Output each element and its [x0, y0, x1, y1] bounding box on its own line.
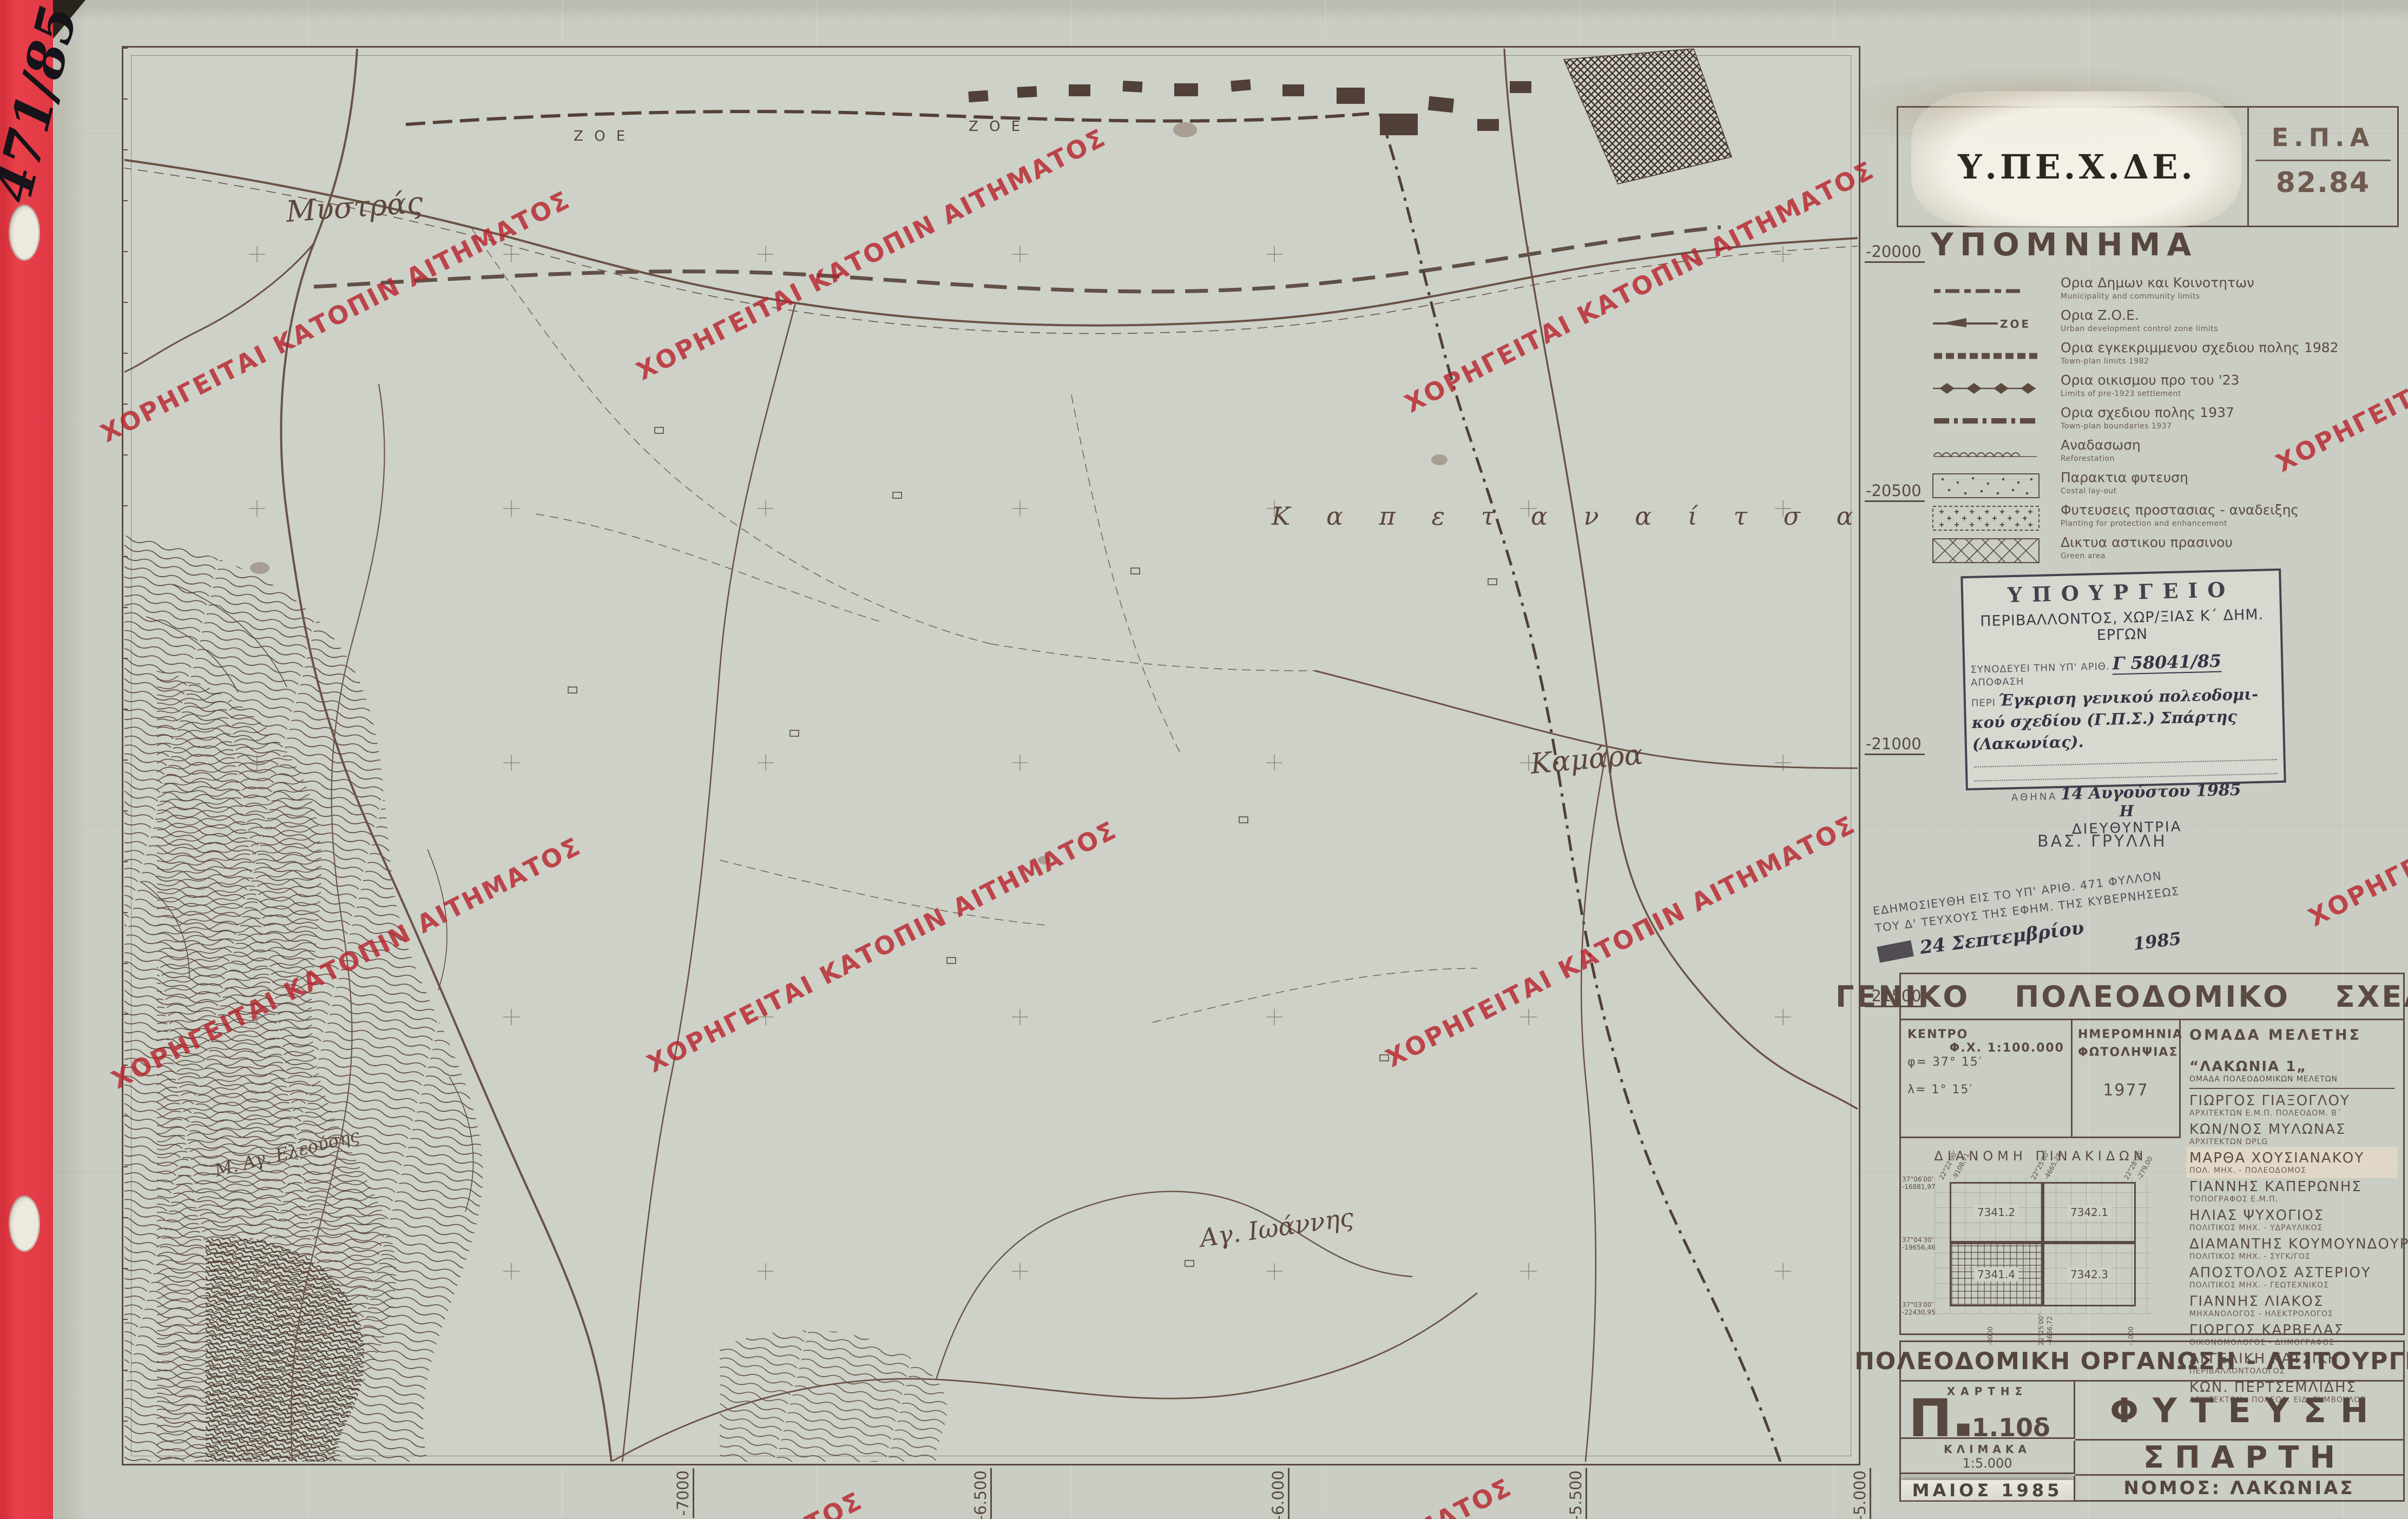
legend-greek: Ορια εγκεκριμμενου σχεδιου πολης 1982	[2061, 340, 2339, 355]
member-role: ΑΡΧΙΤΕΚΤΩΝ Ε.Μ.Π. ΠΟΛΕΟΔΟΜ. Β΄	[2189, 1109, 2394, 1118]
dashdot-line-symbol	[1931, 277, 2042, 305]
member-name: ΓΙΩΡΓΟΣ ΓΙΑΞΟΓΛΟΥ	[2189, 1093, 2394, 1109]
member-role: ΤΟΠΟΓΡΑΦΟΣ Ε.Μ.Π.	[2189, 1195, 2394, 1204]
subject-hand-1: Έγκριση γενικού πολεοδομι-	[1998, 685, 2259, 710]
legend-english: Costal lay-out	[2061, 487, 2117, 496]
index-coord: 37°03′00″	[1902, 1301, 1934, 1309]
member-name: ΓΙΑΝΝΗΣ ΛΙΑΚΟΣ	[2189, 1293, 2394, 1310]
legend-title: ΥΠΟΜΝΗΜΑ	[1931, 226, 2198, 263]
legend-item: ΖΟΕ Ορια Ζ.Ο.Ε.Urban development control…	[1931, 307, 2402, 340]
legend-english: Planting for protection and enhancement	[2061, 519, 2227, 528]
legend-item: Ορια εγκεκριμμενου σχεδιου πολης 1982Tow…	[1931, 340, 2402, 372]
subject-hand-2: κού σχεδίου (Γ.Π.Σ.) Σπάρτης	[1971, 706, 2277, 732]
plus-box-symbol	[1931, 504, 2042, 532]
sheet-index-cell: ΔΙΑΝΟΜΗ ΠΙΝΑΚΙΔΩΝ 7341.2 7342.1 7341.4 7…	[1901, 1140, 2181, 1333]
map-number: ▪1.10δ	[1955, 1413, 2050, 1442]
member-name: ΜΑΡΘΑ ΧΟΥΣΙΑΝΑΚΟΥ	[2189, 1150, 2394, 1166]
ministry-stamp: ΥΠΟΥΡΓΕΙΟ ΠΕΡΙΒΑΛΛΟΝΤΟΣ, ΧΩΡ/ΞΙΑΣ Κ΄ ΔΗΜ…	[1960, 569, 2286, 790]
photo-year: 1977	[2078, 1081, 2174, 1100]
photo-date-cell: ΗΜΕΡΟΜΗΝΙΑ ΦΩΤΟΛΗΨΙΑΣ 1977	[2073, 1020, 2181, 1138]
program-years: 82.84	[2249, 167, 2397, 199]
legend-item: Φυτευσεις προστασιας - αναδειξηςPlanting…	[1931, 502, 2402, 534]
decision-number: Γ 58041/85	[2112, 651, 2221, 675]
decision-suffix: ΑΠΟΦΑΣΗ	[1971, 676, 2024, 688]
legend-english: Town-plan boundaries 1937	[2061, 422, 2172, 431]
grid-coordinate: -20500	[1865, 481, 1925, 502]
gps-title: ΓΕΝΙΚΟ ΠΟΛΕΟΔΟΜΙΚΟ ΣΧΕΔΙΟ	[1901, 974, 2403, 1020]
title-block: ΠΟΛΕΟΔΟΜΙΚΗ ΟΡΓΑΝΩΣΗ - ΛΕΙΤΟΥΡΓΙΕΣ ΧΑΡΤΗ…	[1899, 1340, 2405, 1502]
photo-label-1: ΗΜΕΡΟΜΗΝΙΑ	[2078, 1028, 2174, 1041]
grid-coordinate: -21000	[1865, 735, 1925, 755]
signer-name: ΒΑΣ. ΓΡΥΛΛΗ	[2037, 832, 2167, 851]
grid-coordinate: -6.500	[971, 1468, 992, 1519]
member-name: ΓΙΩΡΓΟΣ ΚΑΡΒΕΛΑΣ	[2189, 1322, 2394, 1338]
map-number-cell: ΧΑΡΤΗΣ Π ▪1.10δ	[1901, 1382, 2075, 1439]
subject-label: ΠΕΡΙ	[1971, 697, 1996, 709]
program-label: Ε.Π.Α	[2249, 123, 2397, 152]
grid-coordinate: -7000	[674, 1468, 694, 1518]
member-name: ΓΙΑΝΝΗΣ ΚΑΠΕΡΩΝΗΣ	[2189, 1179, 2394, 1195]
header-box: Υ.ΠΕ.Χ.ΔΕ. Ε.Π.Α 82.84	[1897, 106, 2399, 227]
grid-coordinate: -6.000	[1269, 1468, 1289, 1519]
index-coord: -22430,95	[1902, 1309, 1936, 1316]
center-label: ΚΕΝΤΡΟ	[1907, 1028, 1968, 1041]
city-name: ΣΠΑΡΤΗ	[2075, 1441, 2403, 1476]
scale-value: 1:5.000	[1901, 1456, 2074, 1471]
long-dash-symbol	[1931, 407, 2042, 435]
gazette-year: 1985	[2132, 928, 2182, 955]
team-cell: ΟΜΑΔΑ ΜΕΛΕΤΗΣ “ΛΑΚΩΝΙΑ 1„ ΟΜΑΔΑ ΠΟΛΕΟΔΟΜ…	[2181, 1020, 2403, 1333]
scale-label: ΚΛΙΜΑΚΑ	[1901, 1443, 2074, 1456]
grid-coordinate: -20000	[1865, 242, 1925, 263]
diamond-line-symbol	[1931, 374, 2042, 402]
legend-english: Urban development control zone limits	[2061, 325, 2218, 333]
ink-blot	[1877, 940, 1914, 963]
index-coord: 37°04′30″	[1902, 1236, 1934, 1244]
sheet-number: 7341.2	[1974, 1205, 2018, 1219]
gps-table: ΓΕΝΙΚΟ ΠΟΛΕΟΔΟΜΙΚΟ ΣΧΕΔΙΟ ΚΕΝΤΡΟ Φ.Χ. 1:…	[1899, 973, 2405, 1335]
sheet-index-map: 7341.2 7342.1 7341.4 7342.3 37°06′00″ -1…	[1935, 1178, 2151, 1314]
punch-hole	[9, 1196, 40, 1252]
sheet-number-current: 7341.4	[1974, 1267, 2018, 1282]
team-name: “ΛΑΚΩΝΙΑ 1„	[2189, 1059, 2394, 1075]
member-name: ΔΙΑΜΑΝΤΗΣ ΚΟΥΜΟΥΝΔΟΥΡΟΣ	[2189, 1236, 2394, 1252]
legend-greek: Παρακτια φυτευση	[2061, 470, 2188, 485]
legend-english: Limits of pre-1923 settlement	[2061, 389, 2181, 398]
member-role: ΠΟΛΙΤΙΚΟΣ ΜΗΧ. - ΥΔΡΑΥΛΙΚΟΣ	[2189, 1224, 2394, 1232]
legend-greek: Δικτυα αστικου πρασινου	[2061, 534, 2233, 550]
legend-english: Town-plan limits 1982	[2061, 357, 2149, 366]
member-role: ΜΗΧΑΝΟΛΟΓΟΣ - ΗΛΕΚΤΡΟΛΟΓΟΣ	[2189, 1310, 2394, 1318]
member-role: ΠΟΛ. ΜΗΧ. - ΠΟΛΕΟΔΟΜΟΣ	[2189, 1166, 2394, 1175]
member-name: ΗΛΙΑΣ ΨΥΧΟΓΙΟΣ	[2189, 1207, 2394, 1224]
ministry-line2: ΠΕΡΙΒΑΛΛΟΝΤΟΣ, ΧΩΡ/ΞΙΑΣ Κ΄ ΔΗΜ. ΕΡΓΩΝ	[1964, 606, 2280, 647]
sheet-number: 7342.1	[2067, 1205, 2111, 1219]
scale-cell: ΚΛΙΜΑΚΑ 1:5.000	[1901, 1441, 2075, 1474]
center-cell: ΚΕΝΤΡΟ Φ.Χ. 1:100.000 φ= 37° 15′ λ= 1° 1…	[1901, 1020, 2073, 1138]
legend-greek: Ορια Δημων και Κοινοτητων	[2061, 275, 2254, 290]
city-label: ΑΘΗΝΑ	[2011, 791, 2058, 803]
legend-item: Παρακτια φυτευσηCostal lay-out	[1931, 470, 2402, 502]
legend-greek: Αναδασωση	[2061, 437, 2141, 453]
program-divider	[2255, 160, 2391, 161]
team-label: ΟΜΑΔΑ ΜΕΛΕΤΗΣ	[2189, 1027, 2394, 1044]
lambda-coordinate: λ= 1° 15′	[1907, 1083, 2064, 1097]
date-cell: ΜΑΙΟΣ 1985	[1901, 1476, 2075, 1500]
zoe-line-symbol: ΖΟΕ	[1931, 309, 2042, 338]
legend-english: Reforestation	[2061, 454, 2115, 463]
scanned-map-sheet: Μυστράς Κ α π ε τ α ν α ί τ σ α Καμάρα Α…	[0, 0, 2408, 1519]
scallop-band-symbol	[1931, 439, 2042, 467]
photo-label-2: ΦΩΤΟΛΗΨΙΑΣ	[2078, 1046, 2174, 1059]
dotted-box-symbol	[1931, 472, 2042, 500]
legend-item: Ορια Δημων και ΚοινοτητωνMunicipality an…	[1931, 275, 2402, 307]
map-series-glyph: Π	[1909, 1388, 1952, 1449]
decision-prefix: ΣΥΝΟΔΕΥΕΙ ΤΗΝ ΥΠ' ΑΡΙΘ.	[1970, 661, 2110, 676]
member-role: ΠΟΛΙΤΙΚΟΣ ΜΗΧ. - ΓΕΩΤΕΧΝΙΚΟΣ	[2189, 1281, 2394, 1290]
grid-coordinate: -5.500	[1567, 1468, 1587, 1519]
zoe-symbol-text: ΖΟΕ	[2000, 318, 2031, 331]
legend-item: Ορια οικισμου προ του '23Limits of pre-1…	[1931, 372, 2402, 405]
prefecture: ΝΟΜΟΣ: ΛΑΚΩΝΙΑΣ	[2075, 1476, 2403, 1500]
member-role: ΠΟΛΙΤΙΚΟΣ ΜΗΧ. - ΣΥΓΚ/ΓΟΣ	[2189, 1252, 2394, 1261]
member-name: ΚΩΝ/ΝΟΣ ΜΥΛΩΝΑΣ	[2189, 1121, 2394, 1138]
member-name: ΑΠΟΣΤΟΛΟΣ ΑΣΤΕΡΙΟΥ	[2189, 1265, 2394, 1281]
phi-coordinate: φ= 37° 15′	[1907, 1055, 2064, 1069]
sheet-number: 7342.3	[2067, 1267, 2111, 1282]
center-value: Φ.Χ. 1:100.000	[1950, 1041, 2064, 1055]
legend-greek: Ορια Ζ.Ο.Ε.	[2061, 307, 2139, 323]
block-dash-symbol	[1931, 342, 2042, 370]
request-strip	[0, 0, 53, 1519]
punch-hole	[9, 204, 40, 261]
grid-coordinate: -5.000	[1851, 1468, 1871, 1519]
agency-title: Υ.ΠΕ.Χ.ΔΕ.	[1898, 108, 2255, 226]
legend-english: Green area	[2061, 552, 2106, 560]
series-title: ΠΟΛΕΟΔΟΜΙΚΗ ΟΡΓΑΝΩΣΗ - ΛΕΙΤΟΥΡΓΙΕΣ	[1901, 1342, 2403, 1382]
index-coord: -16881,97	[1902, 1183, 1936, 1191]
ministry-line1: ΥΠΟΥΡΓΕΙΟ	[1963, 576, 2280, 608]
member-role: ΑΡΧΙΤΕΚΤΩΝ DPLG	[2189, 1138, 2394, 1146]
map-subject: ΦΥΤΕΥΣΗ	[2075, 1382, 2403, 1441]
legend-english: Municipality and community limits	[2061, 292, 2200, 301]
inner-neatline	[131, 55, 1851, 1456]
legend-greek: Φυτευσεις προστασιας - αναδειξης	[2061, 502, 2299, 518]
map-date: ΜΑΙΟΣ 1985	[1901, 1480, 2074, 1501]
legend-item: Δικτυα αστικου πρασινουGreen area	[1931, 534, 2402, 567]
index-coord: 37°06′00″	[1902, 1175, 1934, 1183]
legend-greek: Ορια οικισμου προ του '23	[2061, 372, 2239, 388]
crosshatch-box-symbol	[1931, 537, 2042, 565]
index-coord: -19656,46	[1902, 1244, 1936, 1251]
legend-greek: Ορια σχεδιου πολης 1937	[2061, 405, 2234, 420]
map-frame: Μυστράς Κ α π ε τ α ν α ί τ σ α Καμάρα Α…	[122, 46, 1860, 1465]
team-subtitle: ΟΜΑΔΑ ΠΟΛΕΟΔΟΜΙΚΩΝ ΜΕΛΕΤΩΝ	[2189, 1075, 2394, 1089]
